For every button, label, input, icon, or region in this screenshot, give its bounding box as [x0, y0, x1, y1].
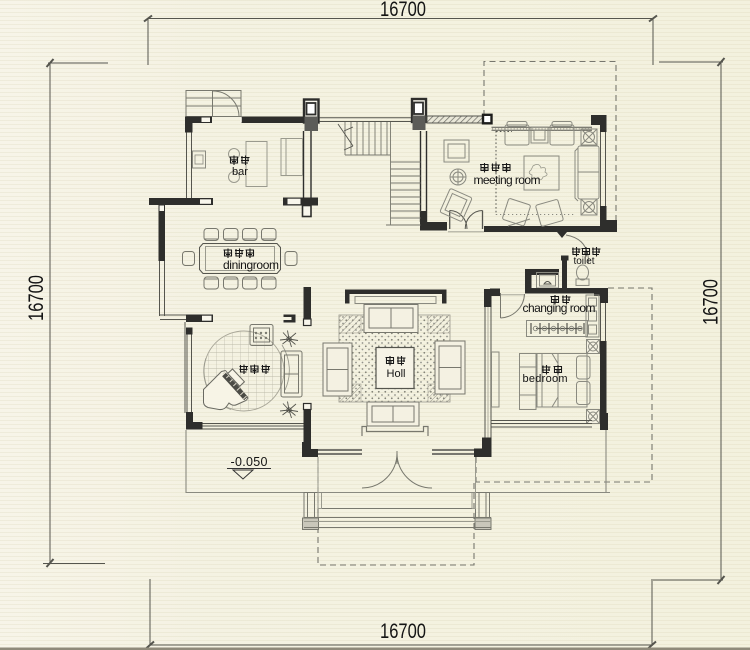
svg-text:16700: 16700 [25, 275, 48, 321]
svg-text:bar: bar [232, 166, 248, 178]
svg-text:changing room: changing room [523, 301, 596, 315]
svg-text:16700: 16700 [380, 620, 426, 643]
svg-text:bedroom: bedroom [523, 373, 568, 385]
svg-text:meeting room: meeting room [474, 173, 541, 187]
svg-text:-0.050: -0.050 [231, 455, 268, 469]
svg-text:toilet: toilet [573, 256, 594, 267]
svg-text:16700: 16700 [380, 0, 426, 21]
svg-text:diningroom: diningroom [223, 258, 279, 272]
svg-text:Holl: Holl [387, 368, 406, 380]
svg-text:16700: 16700 [700, 279, 723, 325]
